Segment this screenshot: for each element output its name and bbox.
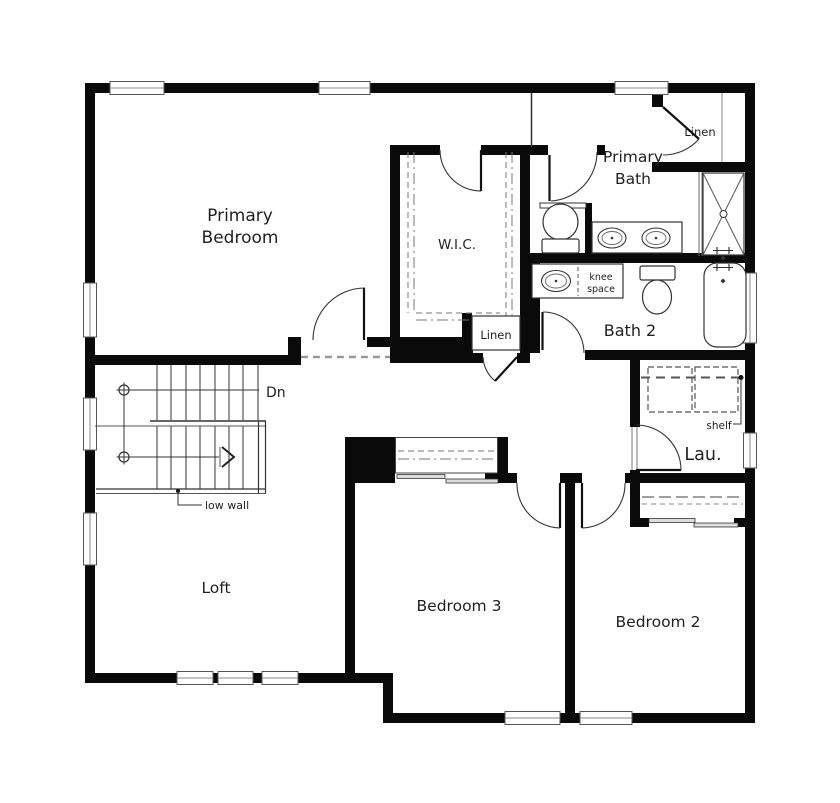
hall-linen-label: Linen: [480, 328, 511, 342]
window: [84, 398, 97, 450]
bypass-door-icon: [397, 475, 445, 479]
floor-plan-drawing: Dn low wall: [0, 0, 840, 803]
window: [110, 82, 164, 95]
floor-plan: Dn low wall: [0, 0, 840, 803]
bypass-door-icon: [694, 523, 738, 527]
primary-bath-label-2: Bath: [615, 170, 651, 188]
laundry-shelf-icon: [641, 367, 744, 424]
window: [505, 712, 560, 725]
bedroom3-closet: [396, 438, 499, 484]
bath2-label: Bath 2: [604, 321, 656, 340]
bedroom2-closet: [642, 497, 743, 527]
room-labels: Primary Bedroom W.I.C. Primary Bath Line…: [201, 125, 731, 631]
bedroom2-label: Bedroom 2: [616, 613, 701, 631]
primary-bath-door: [540, 152, 597, 208]
primary-bedroom-label-1: Primary: [207, 206, 273, 226]
window: [319, 82, 370, 95]
bypass-door-icon: [446, 479, 498, 483]
loft-label: Loft: [201, 579, 230, 597]
primary-bath-label-1: Primary: [603, 148, 663, 166]
laundry-label: Lau.: [684, 445, 721, 465]
shower-icon: [699, 172, 744, 261]
bypass-door-icon: [649, 519, 695, 523]
window: [580, 712, 632, 725]
direction-arrow-icon: [222, 447, 234, 467]
low-wall-label: low wall: [205, 499, 249, 512]
wic-shelf-rod-lines: [408, 152, 512, 320]
window: [177, 672, 213, 685]
bath2-door: [543, 312, 585, 353]
window: [744, 433, 757, 468]
shelf-label: shelf: [706, 420, 732, 432]
knee-space-label-2: space: [587, 284, 615, 295]
stair-direction-line: [117, 383, 260, 468]
stairs-down-label: Dn: [266, 385, 286, 401]
hall-linen-door: [483, 357, 517, 381]
bedroom3-door: [517, 483, 560, 528]
stair-treads-upper: [157, 365, 258, 420]
primary-linen-label: Linen: [684, 125, 715, 139]
laundry-door: [632, 425, 681, 470]
wic-label: W.I.C.: [438, 237, 476, 253]
window: [218, 672, 253, 685]
window: [615, 82, 668, 95]
bedroom2-door: [582, 483, 625, 528]
wic-door: [440, 150, 481, 191]
window: [84, 513, 97, 565]
toilet-icon: [542, 204, 579, 253]
window: [262, 672, 298, 685]
low-wall-callout: [176, 489, 202, 505]
window: [84, 283, 97, 337]
primary-bedroom-label-2: Bedroom: [202, 228, 279, 248]
bedroom3-label: Bedroom 3: [417, 597, 502, 615]
staircase: Dn low wall: [95, 365, 286, 512]
toilet-icon: [640, 266, 675, 314]
double-vanity-icon: [592, 222, 682, 253]
bathtub-icon: [704, 263, 746, 347]
knee-space-label-1: knee: [589, 272, 612, 283]
